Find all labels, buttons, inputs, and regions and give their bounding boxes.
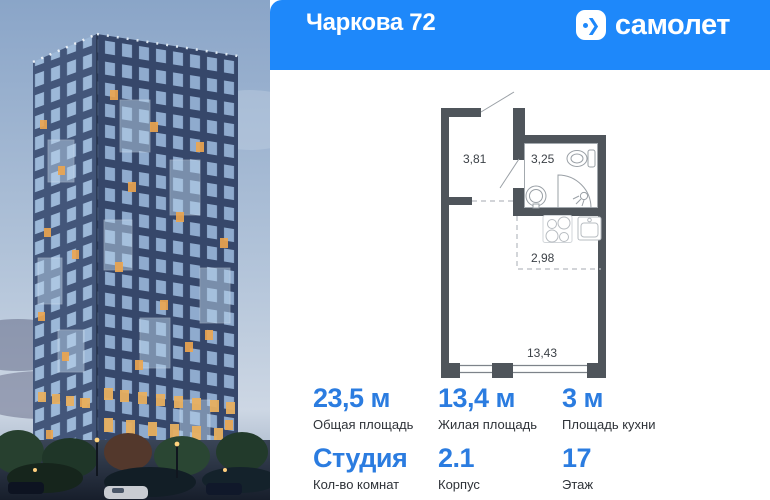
project-title: Чаркова 72 (306, 10, 435, 36)
stat-value: 23,5 м (313, 384, 438, 412)
building-photo (0, 0, 270, 500)
living-area-label: 13,43 (527, 346, 557, 360)
shower-icon (573, 192, 588, 206)
samolet-arrow-icon: ❯ (576, 10, 606, 40)
listing-card: Чаркова 72 ❯ самолет (0, 0, 770, 500)
panel-header: Чаркова 72 ❯ самолет (270, 0, 770, 70)
kitchen-sink-icon (578, 217, 601, 240)
stat-value: 3 м (562, 384, 722, 412)
stat-label: Площадь кухни (562, 417, 722, 432)
floor-plan: 3,81 3,25 2,98 13,43 (430, 85, 626, 387)
flat-info-panel: Чаркова 72 ❯ самолет (270, 0, 770, 500)
stat-label: Жилая площадь (438, 417, 562, 432)
brand-name: самолет (615, 11, 730, 40)
stat-label: Этаж (562, 477, 722, 492)
stat-label: Общая площадь (313, 417, 438, 432)
stats-row-details: Студия Кол-во комнат 2.1 Корпус 17 Этаж (313, 444, 763, 492)
brand-logo[interactable]: ❯ самолет (576, 10, 730, 40)
stats-row-areas: 23,5 м Общая площадь 13,4 м Жилая площад… (313, 384, 763, 432)
stove-icon (543, 216, 572, 243)
stat-building: 2.1 Корпус (438, 444, 562, 492)
stat-value: 17 (562, 444, 722, 472)
bathroom-door-arc (558, 175, 591, 208)
stat-label: Корпус (438, 477, 562, 492)
logo-chevron-icon: ❯ (586, 17, 600, 34)
hallway-area-label: 3,81 (463, 152, 487, 166)
stat-label: Кол-во комнат (313, 477, 438, 492)
washbasin-icon (526, 186, 546, 208)
stat-kitchen-area: 3 м Площадь кухни (562, 384, 722, 432)
stat-value: 13,4 м (438, 384, 562, 412)
logo-dot-icon (583, 23, 588, 28)
stat-living-area: 13,4 м Жилая площадь (438, 384, 562, 432)
plan-windows (460, 366, 587, 373)
building-render-dusk-icon (0, 0, 270, 500)
stat-floor: 17 Этаж (562, 444, 722, 492)
stat-value: Студия (313, 444, 438, 472)
toilet-icon (567, 150, 595, 167)
stat-value: 2.1 (438, 444, 562, 472)
stat-rooms: Студия Кол-во комнат (313, 444, 438, 492)
kitchen-area-label: 2,98 (531, 251, 555, 265)
plan-walls (441, 108, 606, 378)
bathroom-area-label: 3,25 (531, 152, 555, 166)
stat-total-area: 23,5 м Общая площадь (313, 384, 438, 432)
